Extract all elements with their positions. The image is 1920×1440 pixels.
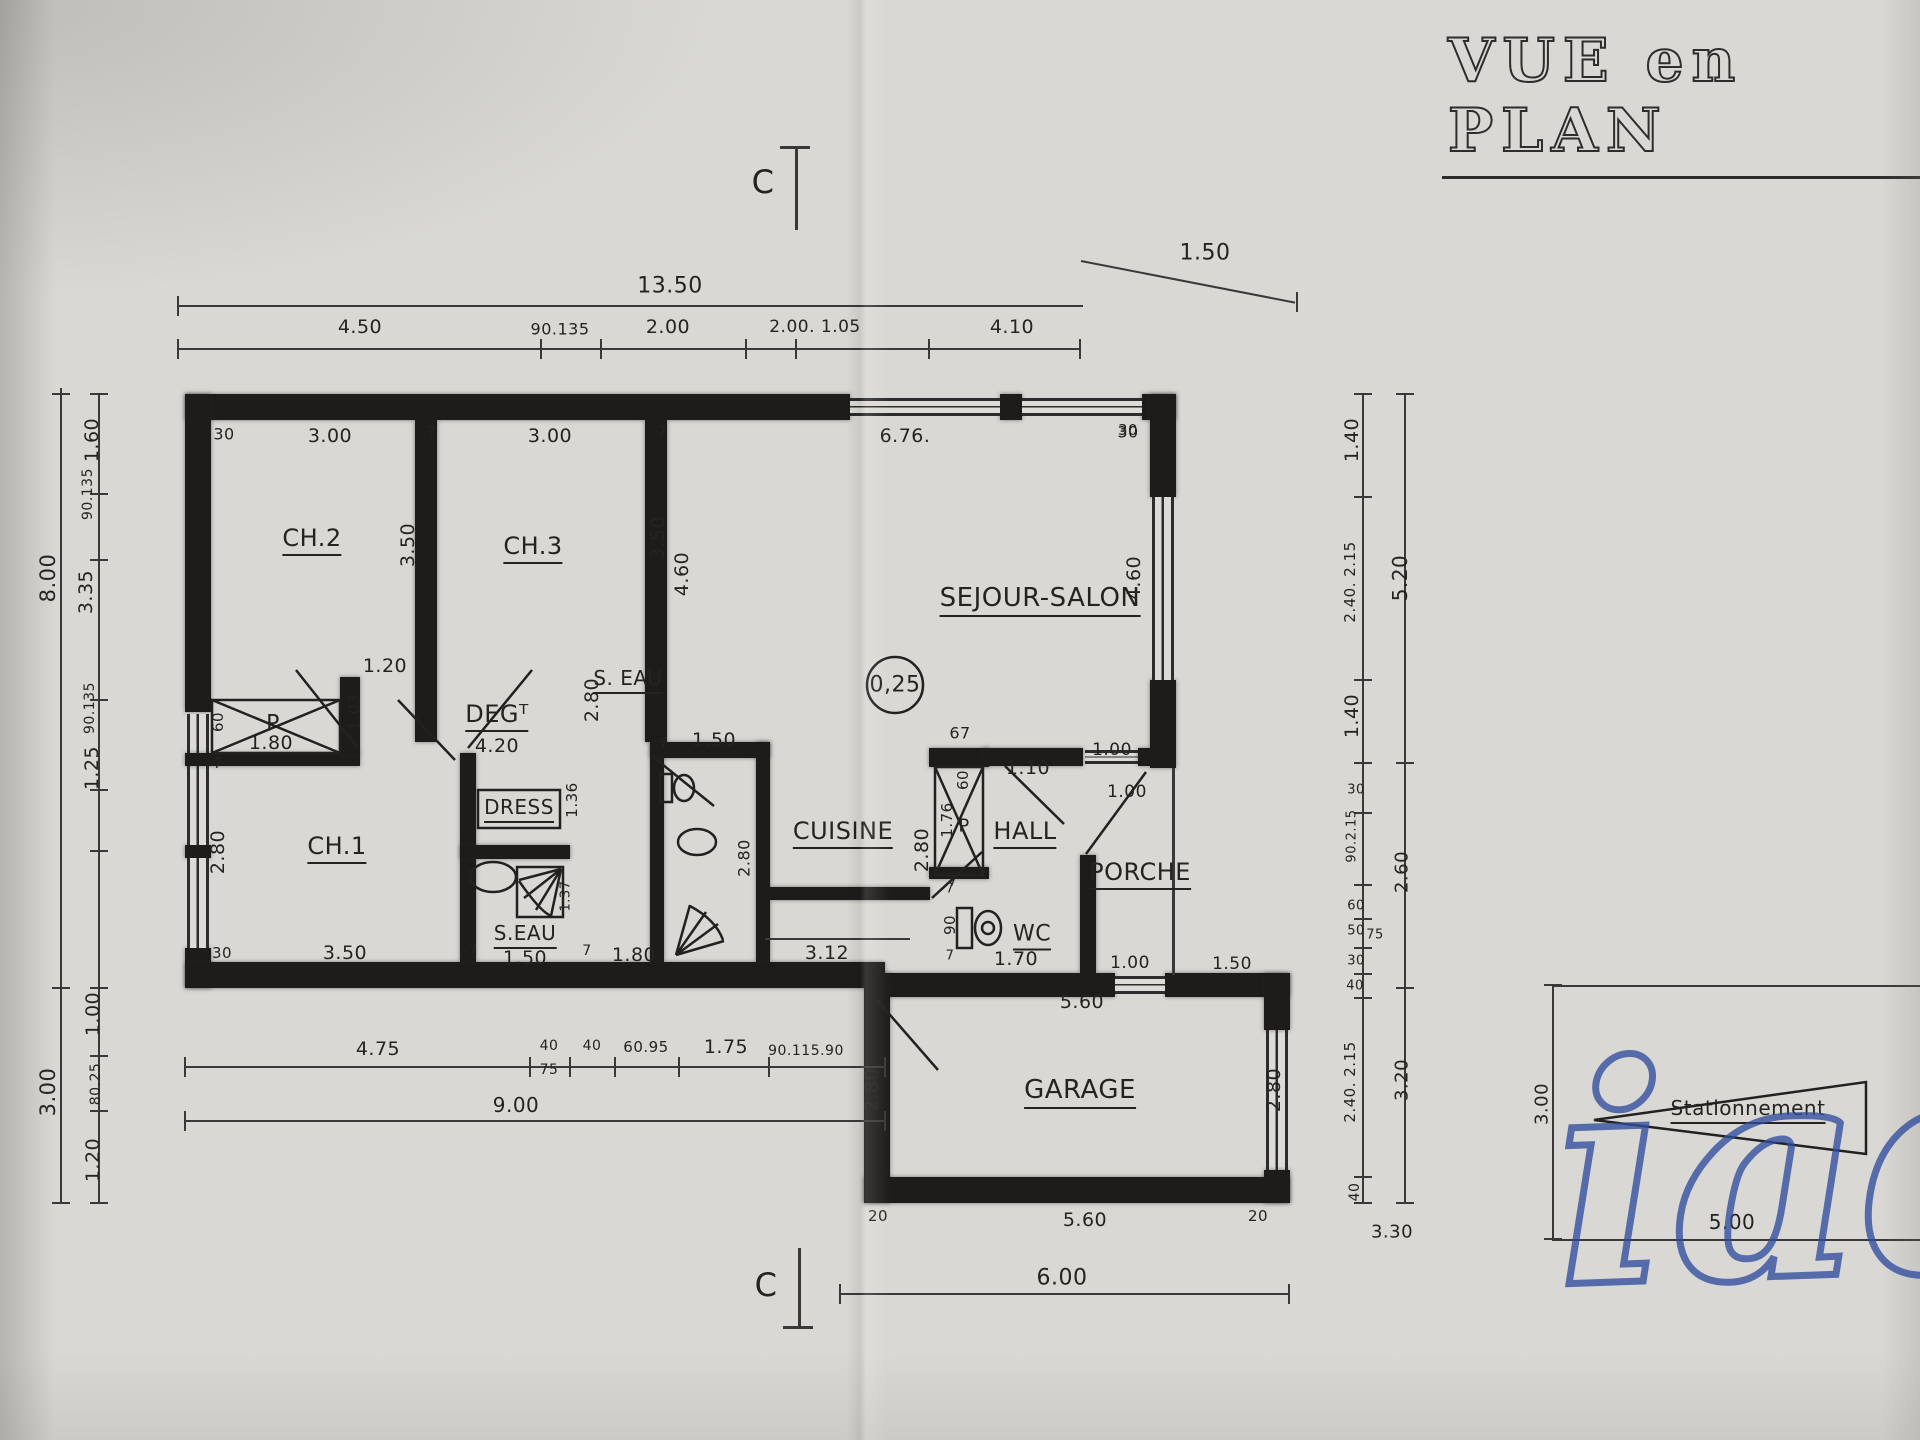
dimension-label: 30 — [1118, 421, 1138, 439]
door-swing — [398, 700, 455, 760]
dimension-label: 3.12 — [805, 942, 849, 964]
dimension-label: 2.80 — [207, 830, 229, 874]
closet-label: P — [958, 816, 969, 837]
door-swing — [877, 1000, 938, 1070]
dimension-label: 1.20 — [363, 655, 407, 677]
dimension-label: 1.00 — [82, 992, 104, 1036]
dimension-label: 1.75 — [704, 1036, 748, 1058]
dimension-label: 1.00 — [1092, 740, 1132, 760]
dimension-label: 3.00 — [36, 1068, 60, 1117]
dimension-label: 90.115.90 — [768, 1043, 844, 1059]
dimension-label: 40 — [540, 1038, 559, 1054]
dimension-label: 75 — [1366, 928, 1384, 943]
dimension-label: 90 — [941, 915, 959, 935]
sink — [678, 829, 716, 855]
dimension-label: 1.50 — [692, 729, 736, 751]
toilet-bowl-inner — [982, 922, 994, 934]
dimension-label: 2.00. 1.05 — [769, 317, 861, 337]
dimension-label: 5.60 — [1063, 1209, 1107, 1231]
dimension-label: 40 — [1347, 1183, 1363, 1202]
dimension-label: 7 — [345, 734, 354, 750]
dimension-label: 4.10 — [990, 316, 1034, 338]
dimension-label: 1.03 — [345, 693, 364, 731]
dimension-label: 6.76. — [880, 425, 931, 447]
dimension-label: 1.70 — [994, 948, 1038, 970]
dimension-label: 2.40. 2.15 — [1341, 541, 1359, 622]
floor-plan-page: VUE en PLAN — [0, 0, 1920, 1440]
toilet-bowl — [975, 911, 1001, 945]
iad-watermark-logo: iad — [1550, 1011, 1920, 1329]
dimension-label: 2.80 — [861, 1068, 883, 1112]
dimension-label: 30 — [1347, 783, 1365, 798]
dimension-label: 50 — [1347, 924, 1365, 939]
dimension-label: 1.20 — [82, 1138, 104, 1182]
dim-top-ext: 1.50 — [1180, 241, 1231, 266]
dimension-label: 2.80 — [1263, 1068, 1285, 1112]
dimension-label: 6.00 — [1037, 1266, 1088, 1291]
dimension-label: 7 — [657, 423, 667, 441]
dimension-label: 1.50 — [1212, 954, 1252, 974]
dimension-label: 30 — [212, 944, 232, 962]
dimension-label: 7 — [427, 423, 437, 441]
dimension-label: 1.10 — [1006, 757, 1050, 779]
room-label-seau1: S.EAU — [494, 921, 557, 949]
door-swing — [652, 756, 714, 806]
dimension-label: 3.00 — [308, 425, 352, 447]
dim-top-total: 13.50 — [637, 274, 702, 299]
dimension-label: 1.37 — [559, 881, 574, 912]
room-label-deg: DEGᵀ — [465, 700, 528, 732]
dimension-label: 1.00 — [1107, 782, 1147, 802]
room-label-ch3: CH.3 — [503, 532, 562, 564]
dimension-label: 2.00 — [646, 316, 690, 338]
room-label-ch1: CH.1 — [307, 832, 366, 864]
dimension-label: 4.20 — [475, 735, 519, 757]
dimension-label: 1.25 — [81, 746, 103, 790]
dimension-label: 60.95 — [623, 1038, 668, 1056]
dimension-label: 5.20 — [1388, 555, 1412, 602]
dimension-label: 3.35 — [75, 570, 97, 614]
dimension-label: 4.60 — [671, 552, 693, 596]
dimension-label: 30 — [213, 425, 234, 444]
dimension-label: 90.135 — [82, 682, 98, 734]
dimension-label: 90.135 — [531, 320, 590, 339]
section-marker-bottom: C — [755, 1266, 778, 1304]
dimension-label: 1.00 — [1110, 953, 1150, 973]
dimension-label: 7 — [582, 943, 591, 959]
dimension-label: 2.60 — [1392, 851, 1413, 893]
room-label-porche: PORCHE — [1089, 858, 1191, 890]
room-label-seau2: S. EAU — [593, 666, 662, 694]
dimension-label: 2.80 — [735, 839, 754, 877]
dimension-label: 4.60 — [1123, 556, 1145, 600]
dimension-label: 1.80 — [612, 944, 656, 966]
dimension-label: 3.50 — [647, 516, 669, 560]
dimension-label: 1.60 — [81, 418, 103, 462]
dimension-label: 7 — [468, 943, 477, 959]
dimension-label: 20 — [868, 1207, 888, 1225]
room-label-ch2: CH.2 — [282, 524, 341, 556]
dimension-label: 1.80 — [249, 732, 293, 754]
dimension-label: 4.50 — [338, 316, 382, 338]
dimension-label: 7 — [213, 756, 222, 772]
ceiling-height: 0,25 — [870, 673, 921, 698]
dimension-label: 40 — [1346, 979, 1364, 994]
page-title: VUE en PLAN — [1442, 26, 1920, 179]
dimension-label: 5.60 — [1060, 991, 1104, 1013]
shower-fan — [519, 869, 561, 916]
dimension-label: 1.50 — [503, 947, 547, 969]
dimension-label: 2.40. 2.15 — [1341, 1041, 1359, 1122]
sink — [470, 862, 516, 892]
toilet-tank — [660, 774, 672, 802]
shower-fan — [676, 905, 724, 955]
section-marker-top: C — [752, 163, 775, 201]
dimension-label: 1.76 — [938, 802, 956, 837]
room-label-hall: HALL — [993, 817, 1056, 849]
room-label-sejour: SEJOUR-SALON — [940, 583, 1141, 617]
dimension-label: 7 — [946, 949, 955, 964]
dimension-label: 1.40 — [1341, 694, 1363, 738]
dimension-label: 20 — [1248, 1207, 1268, 1225]
dimension-label: 7 — [659, 736, 668, 752]
dimension-label: 60 — [209, 712, 227, 732]
dimension-label: 3.30 — [1371, 1222, 1413, 1243]
dimension-label: 30 — [1347, 954, 1365, 969]
dimension-label: 60 — [954, 770, 972, 790]
dimension-label: 7 — [946, 882, 955, 897]
dimension-label: 8.00 — [36, 554, 60, 603]
dimension-label: 3.20 — [1392, 1059, 1413, 1101]
room-label-dress: DRESS — [484, 795, 554, 823]
dimension-label: 3.50 — [397, 523, 419, 567]
dimension-label: 75 — [540, 1062, 559, 1078]
dimension-label: 67 — [949, 724, 970, 743]
dimension-label: 60 — [1347, 899, 1365, 914]
room-label-garage: GARAGE — [1024, 1075, 1136, 1109]
dimension-label: 3.00 — [1532, 1083, 1553, 1125]
dimension-label: 2.80 — [911, 828, 933, 872]
dimension-label: 3.00 — [528, 425, 572, 447]
dimension-label: 90.135 — [80, 468, 96, 520]
dimension-label: 2.80 — [581, 678, 603, 722]
dimension-label: 80.25 — [88, 1063, 104, 1106]
toilet-tank — [957, 908, 972, 948]
dimension-label: 90.2.15 — [1345, 809, 1360, 862]
room-label-cuisine: CUISINE — [793, 817, 893, 849]
dimension-label: 9.00 — [493, 1093, 540, 1117]
dimension-label: 1.40 — [1341, 418, 1363, 462]
dimension-label: 4.75 — [356, 1038, 400, 1060]
room-label-wc: WC — [1013, 922, 1051, 951]
dimension-label: 1.36 — [563, 782, 581, 817]
dimension-label: 40 — [583, 1038, 602, 1054]
dimension-label: 3.50 — [323, 942, 367, 964]
